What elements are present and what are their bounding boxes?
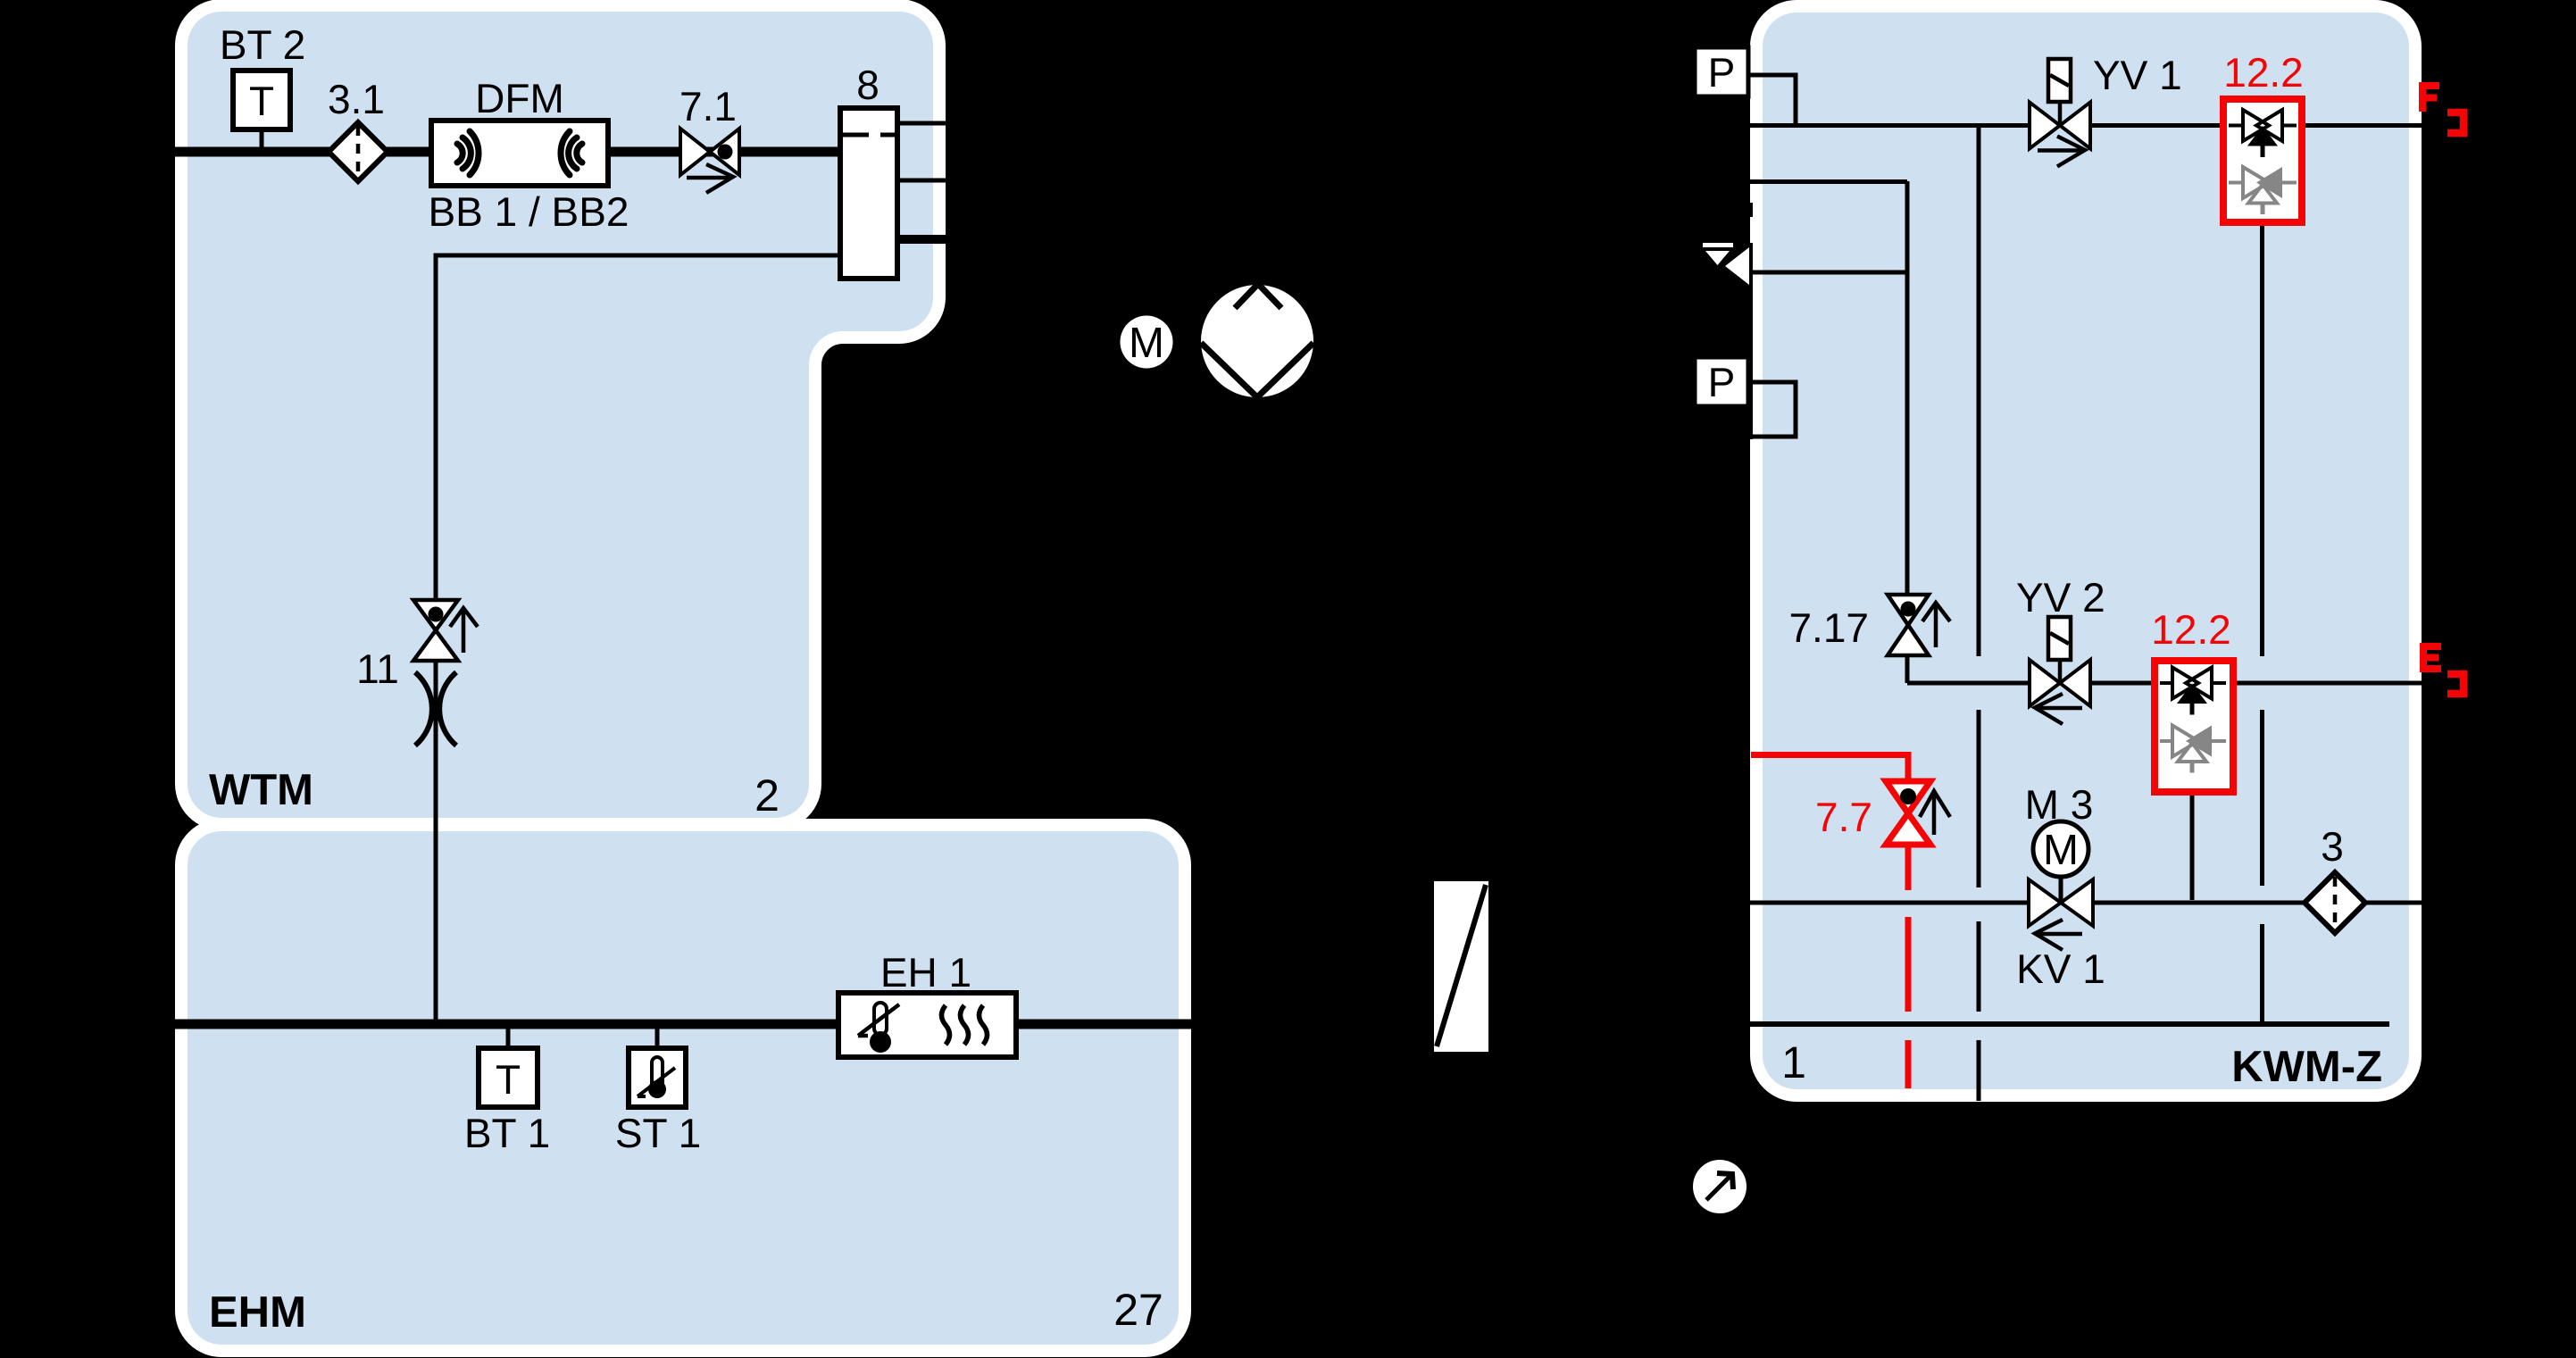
svg-text:EH 1: EH 1 xyxy=(880,949,971,996)
svg-text:EHM: EHM xyxy=(209,1288,306,1337)
svg-text:WTM: WTM xyxy=(209,766,313,814)
svg-text:12.2: 12.2 xyxy=(2223,49,2304,96)
svg-text:P: P xyxy=(1708,49,1736,96)
svg-text:12.2: 12.2 xyxy=(2151,606,2231,653)
svg-text:P: P xyxy=(1708,359,1736,405)
svg-text:8: 8 xyxy=(856,62,880,108)
svg-text:T: T xyxy=(249,78,274,124)
svg-text:BB 1 / BB2: BB 1 / BB2 xyxy=(428,188,629,235)
svg-text:ST 1: ST 1 xyxy=(615,1110,701,1156)
svg-text:BT 1: BT 1 xyxy=(464,1110,550,1156)
svg-text:M: M xyxy=(2043,827,2079,874)
svg-text:DFM: DFM xyxy=(475,75,564,121)
svg-text:7.7: 7.7 xyxy=(1815,794,1872,840)
svg-text:3: 3 xyxy=(2321,823,2344,870)
svg-text:KWM-Z: KWM-Z xyxy=(2231,1043,2382,1091)
svg-text:M 3: M 3 xyxy=(2025,781,2094,828)
svg-text:3.1: 3.1 xyxy=(328,76,385,122)
svg-text:2: 2 xyxy=(754,771,779,821)
svg-text:YV 1: YV 1 xyxy=(2093,52,2182,98)
svg-text:11: 11 xyxy=(356,646,399,692)
svg-text:T: T xyxy=(496,1056,521,1103)
svg-text:YV 2: YV 2 xyxy=(2016,574,2105,621)
svg-text:1: 1 xyxy=(1781,1037,1806,1087)
svg-text:27: 27 xyxy=(1113,1285,1163,1335)
svg-text:BT 2: BT 2 xyxy=(220,21,305,68)
svg-text:M: M xyxy=(1129,320,1164,367)
svg-text:KV 1: KV 1 xyxy=(2016,946,2105,992)
svg-text:7.1: 7.1 xyxy=(679,83,737,129)
svg-text:7.17: 7.17 xyxy=(1788,604,1869,651)
